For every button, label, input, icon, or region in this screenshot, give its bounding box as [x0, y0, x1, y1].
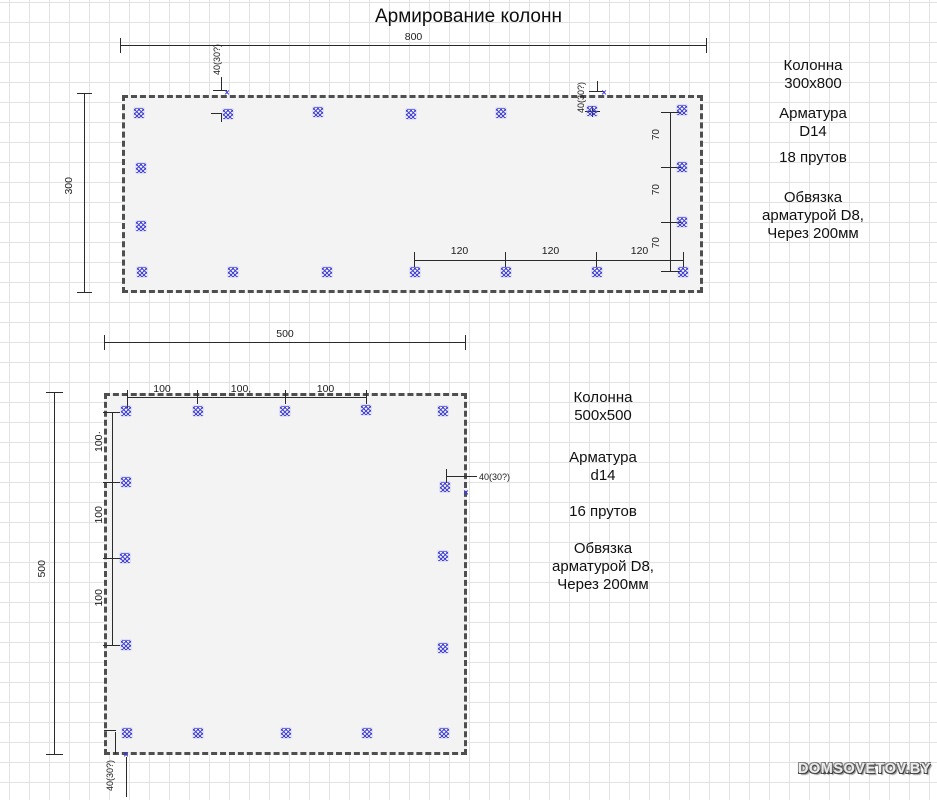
rebar-mark — [223, 109, 233, 119]
dim-tick — [683, 252, 684, 267]
tie-line: Обвязка — [728, 189, 898, 207]
dim-label-100-left-2: 100 — [93, 506, 105, 524]
dim-label-100-left-3: 100 — [93, 589, 105, 607]
rebar-x-mark: × — [224, 89, 229, 98]
rebar-mark — [137, 267, 147, 277]
rebar-mark — [136, 163, 146, 173]
rebar-mark — [228, 267, 238, 277]
dim-label-500-left: 500 — [36, 560, 48, 578]
column-name-line: Колонна — [728, 57, 898, 75]
dim-label-100-left-1: 100· — [93, 431, 105, 452]
dim-label-100-top-2: 100, — [197, 383, 285, 395]
rebar-mark — [410, 267, 420, 277]
dim-label-cover-left: 40(30?) — [211, 44, 223, 75]
rebar-mark — [587, 106, 597, 116]
rod-count: 18 прутов — [728, 149, 898, 167]
column-500x500-outline — [104, 393, 467, 755]
dim-tick — [77, 292, 92, 293]
dim-label-500-top: 500 — [104, 328, 466, 340]
column-300x800-outline — [122, 95, 703, 293]
dim-tick — [104, 730, 116, 731]
column-size: 500х500 — [518, 407, 688, 425]
dim-line-500-left — [54, 392, 55, 755]
rod-count: 16 прутов — [518, 503, 688, 521]
column-name-line: Колонна — [518, 389, 688, 407]
rebar-mark — [361, 405, 371, 415]
dim-tick — [221, 113, 222, 122]
rebar-mark — [280, 406, 290, 416]
column-size: 300х800 — [728, 75, 898, 93]
dim-tick — [46, 754, 63, 755]
dim-label-120-1: 120 — [414, 245, 505, 257]
dim-label-cover-right: 40(30?) — [575, 82, 587, 113]
rebar-mark — [677, 162, 687, 172]
dim-line-cover-bottom — [115, 732, 116, 754]
dim-line-100-top-chain — [127, 397, 366, 398]
dim-label-100-top-1: 100 — [127, 383, 197, 395]
rebar-mark — [362, 728, 372, 738]
rebar-mark — [281, 728, 291, 738]
dim-tick — [103, 412, 120, 413]
rebar-x-mark: × — [601, 89, 606, 98]
rebar-mark — [134, 108, 144, 118]
rebar-label: Арматура — [518, 449, 688, 467]
rebar-diameter: D14 — [728, 123, 898, 141]
dim-tick — [103, 482, 120, 483]
rebar-label: Арматура — [728, 105, 898, 123]
rebar-mark — [121, 406, 131, 416]
tie-line: Через 200мм — [728, 225, 898, 243]
drawing-title: Армирование колонн — [0, 6, 937, 28]
rebar-mark — [678, 267, 688, 277]
rebar-x-mark: × — [123, 751, 128, 760]
rebar-mark — [438, 406, 448, 416]
dim-line-800 — [120, 45, 707, 46]
dim-tick — [366, 390, 367, 404]
rebar-mark — [677, 105, 687, 115]
dim-label-120-2: 120 — [505, 245, 596, 257]
dim-label-70-1: 70 — [651, 129, 663, 140]
rebar-mark — [677, 217, 687, 227]
rebar-mark — [322, 267, 332, 277]
dim-line-cover-bottom-ext — [126, 757, 127, 797]
rebar-mark — [592, 267, 602, 277]
rebar-mark — [440, 482, 450, 492]
rebar-mark — [121, 477, 131, 487]
dim-line-100-left-chain — [112, 412, 113, 645]
rebar-mark — [120, 553, 130, 563]
rebar-mark — [121, 640, 131, 650]
dim-line-cover-left — [221, 77, 222, 90]
dim-tick — [103, 645, 120, 646]
watermark: DOMSOVETOV.BY — [798, 761, 922, 777]
dim-line-cover-right2 — [446, 476, 477, 477]
dim-label-70-2: 70 — [651, 184, 663, 195]
dim-label-cover-bottom: 40(30?) — [104, 760, 116, 791]
dim-label-100-top-3: 100 — [285, 383, 366, 395]
rebar-diameter: d14 — [518, 467, 688, 485]
tie-line: Через 200мм — [518, 576, 688, 594]
dim-label-cover-right2: 40(30?) — [479, 471, 510, 483]
tie-line: арматурой D8, — [728, 207, 898, 225]
dim-tick — [77, 93, 92, 94]
rebar-mark — [193, 728, 203, 738]
dim-label-800: 800 — [120, 31, 707, 43]
dim-tick — [103, 558, 120, 559]
tie-line: Обвязка — [518, 540, 688, 558]
rebar-mark — [496, 108, 506, 118]
rebar-mark — [122, 728, 132, 738]
rebar-mark — [193, 406, 203, 416]
dim-line-500-top — [104, 342, 466, 343]
dim-line-120-chain — [414, 260, 683, 261]
rebar-mark — [439, 728, 449, 738]
column-300x800-info: Колонна 300х800 Арматура D14 18 прутов О… — [728, 57, 898, 243]
dim-label-300: 300 — [63, 177, 75, 195]
rebar-mark — [406, 109, 416, 119]
column-500x500-info: Колонна 500х500 Арматура d14 16 прутов О… — [518, 389, 688, 594]
dim-line-300 — [84, 93, 85, 293]
rebar-mark — [136, 221, 146, 231]
rebar-mark — [438, 551, 448, 561]
rebar-x-mark: × — [463, 489, 468, 498]
dim-label-120-3: 120 — [596, 245, 683, 257]
rebar-mark — [438, 643, 448, 653]
tie-line: арматурой D8, — [518, 558, 688, 576]
dim-tick — [46, 392, 63, 393]
rebar-mark — [313, 107, 323, 117]
rebar-mark — [501, 267, 511, 277]
